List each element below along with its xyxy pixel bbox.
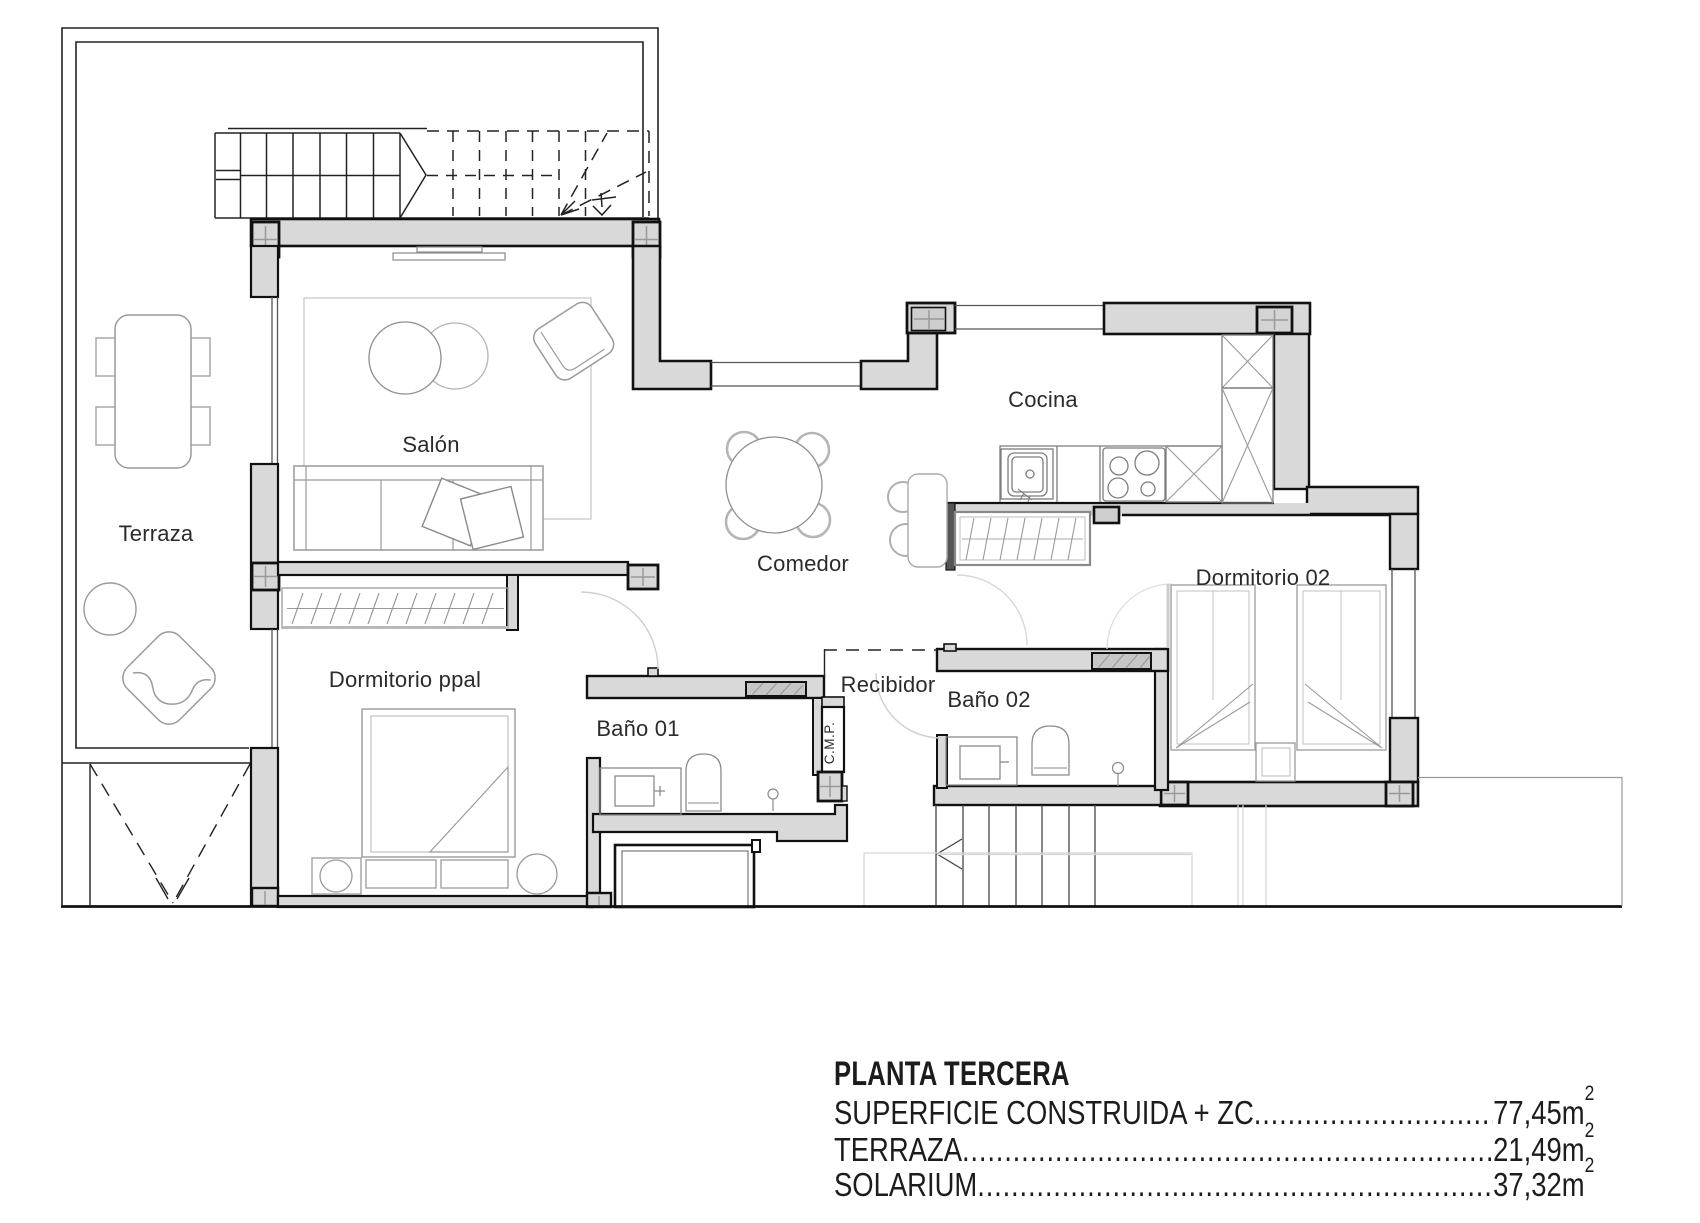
svg-text:Cocina: Cocina [1008,387,1078,412]
svg-text:Dormitorio ppal: Dormitorio ppal [329,667,481,692]
svg-text:Dormitorio 02: Dormitorio 02 [1196,565,1331,590]
svg-text:C.M.P.: C.M.P. [822,722,837,765]
svg-text:Baño 02: Baño 02 [947,687,1030,712]
svg-text:Comedor: Comedor [757,551,849,576]
svg-text:Terraza: Terraza [119,521,194,546]
svg-text:Recibidor: Recibidor [841,672,936,697]
svg-text:Salón: Salón [402,432,459,457]
svg-text:Baño 01: Baño 01 [596,716,679,741]
